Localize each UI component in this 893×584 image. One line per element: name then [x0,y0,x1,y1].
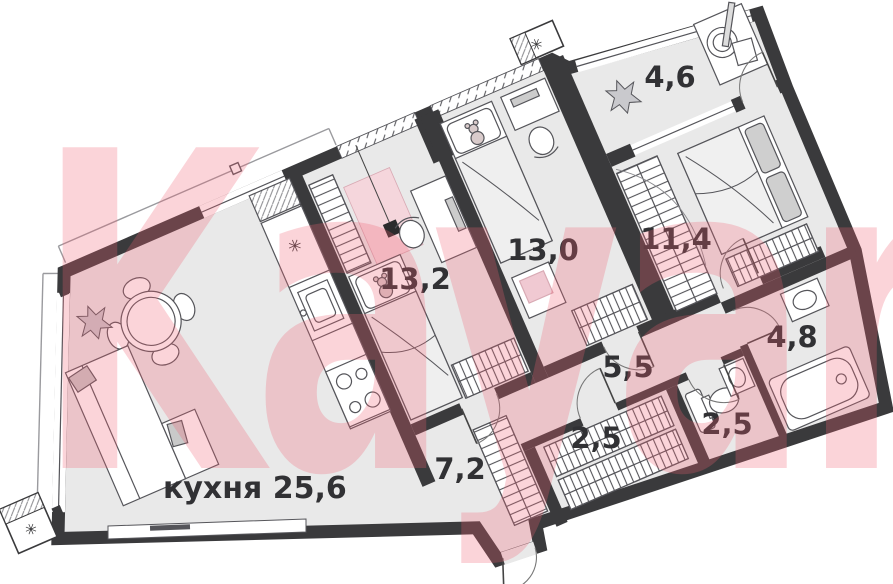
label-bedroom-c: 11,4 [640,222,712,256]
label-bedroom-a: 13,2 [379,262,451,296]
floor-plan: ✳ ✳ ✳ кухня 25,6 13,2 13,0 11,4 4,6 5,5 … [0,0,893,584]
label-wardrobe: 2,5 [570,421,621,455]
label-wc: 2,5 [701,407,752,441]
label-kitchen: кухня 25,6 [163,471,347,506]
ac-unit: ✳ [0,493,57,554]
label-bathroom: 4,8 [766,320,817,354]
label-corridor: 5,5 [602,350,653,384]
label-loggia: 4,6 [644,60,695,94]
label-hallway: 7,2 [434,452,485,486]
label-bedroom-b: 13,0 [507,233,579,267]
floor-plan-page: ✳ ✳ ✳ кухня 25,6 13,2 13,0 11,4 4,6 5,5 … [0,0,893,584]
